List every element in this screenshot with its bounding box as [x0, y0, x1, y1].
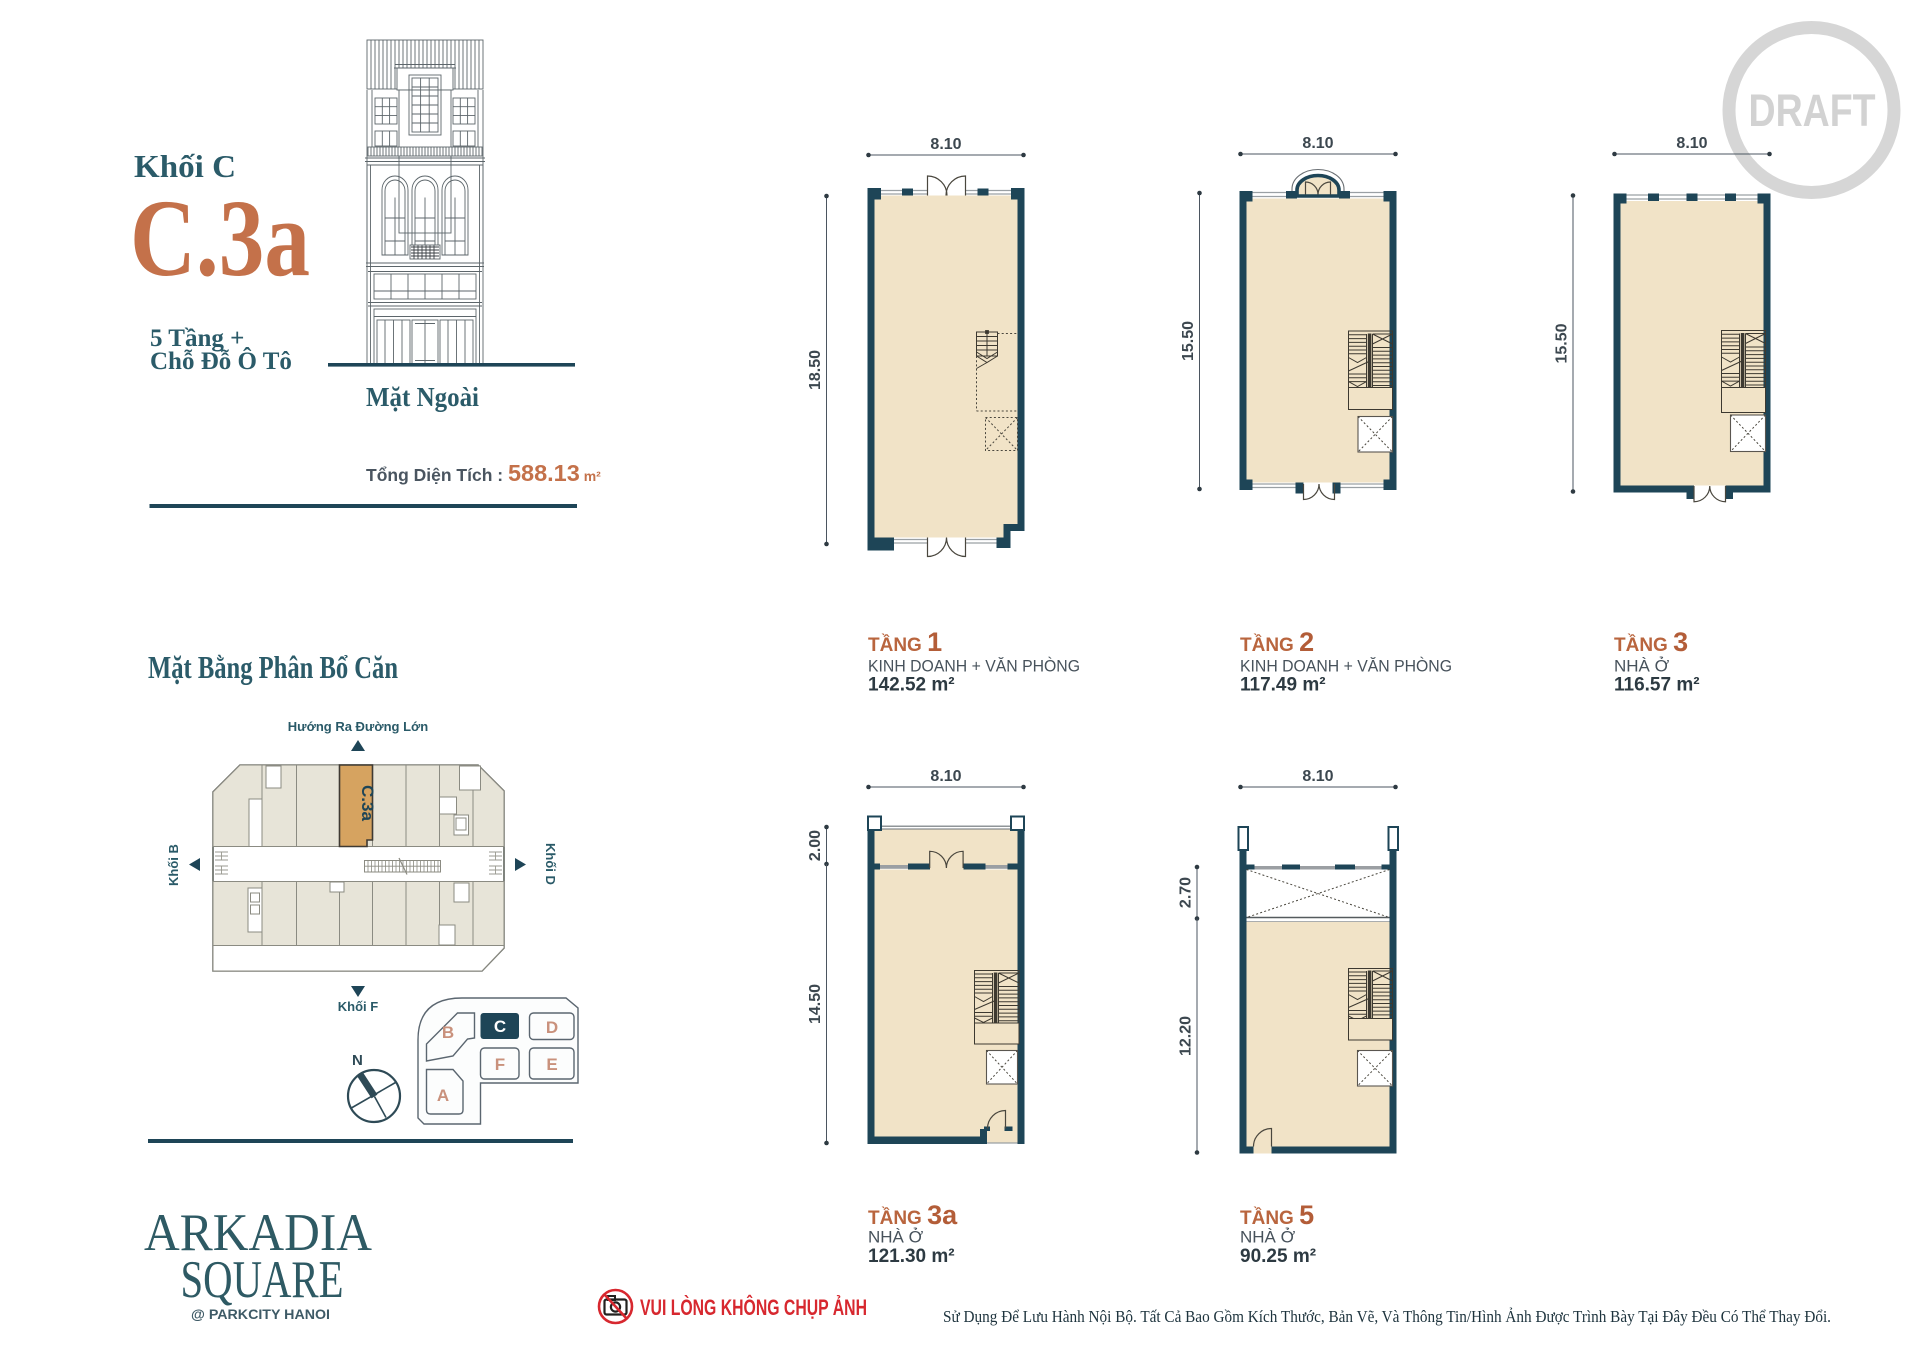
svg-text:15.50: 15.50	[1180, 321, 1197, 361]
svg-text:Khối B: Khối B	[166, 844, 181, 886]
svg-text:A: A	[437, 1086, 449, 1105]
svg-text:@ PARKCITY HANOI: @ PARKCITY HANOI	[191, 1307, 330, 1322]
svg-text:NHÀ Ở: NHÀ Ở	[1240, 1228, 1296, 1247]
svg-text:90.25 m²: 90.25 m²	[1240, 1246, 1316, 1267]
svg-text:C.3a: C.3a	[358, 785, 377, 821]
svg-text:8.10: 8.10	[1302, 135, 1333, 152]
svg-text:18.50: 18.50	[807, 350, 824, 390]
svg-text:KINH DOANH + VĂN PHÒNG: KINH DOANH + VĂN PHÒNG	[1240, 657, 1452, 676]
svg-text:8.10: 8.10	[930, 768, 961, 785]
svg-text:E: E	[546, 1055, 557, 1074]
svg-text:121.30 m²: 121.30 m²	[868, 1246, 955, 1267]
svg-text:VUI LÒNG KHÔNG CHỤP ẢNH: VUI LÒNG KHÔNG CHỤP ẢNH	[640, 1295, 867, 1320]
svg-text:SQUARE: SQUARE	[181, 1251, 344, 1309]
svg-text:NHÀ Ở: NHÀ Ở	[868, 1228, 924, 1247]
svg-text:8.10: 8.10	[1302, 768, 1333, 785]
svg-text:Mặt Ngoài: Mặt Ngoài	[366, 382, 479, 412]
svg-text:8.10: 8.10	[1676, 135, 1707, 152]
svg-text:2.70: 2.70	[1178, 877, 1195, 908]
svg-text:8.10: 8.10	[930, 136, 961, 153]
svg-text:Chỗ Đỗ Ô Tô: Chỗ Đỗ Ô Tô	[150, 346, 292, 375]
svg-text:14.50: 14.50	[807, 984, 824, 1024]
svg-text:NHÀ Ở: NHÀ Ở	[1614, 657, 1670, 676]
svg-text:C.3a: C.3a	[130, 177, 310, 299]
svg-text:N: N	[352, 1052, 363, 1069]
svg-text:KINH DOANH + VĂN PHÒNG: KINH DOANH + VĂN PHÒNG	[868, 657, 1080, 676]
svg-text:12.20: 12.20	[1178, 1016, 1195, 1056]
svg-text:15.50: 15.50	[1554, 323, 1571, 363]
svg-text:Khối D: Khối D	[543, 843, 558, 885]
svg-text:Sử Dụng Để Lưu Hành Nội Bộ. Tấ: Sử Dụng Để Lưu Hành Nội Bộ. Tất Cả Bao G…	[943, 1307, 1831, 1326]
svg-text:2.00: 2.00	[807, 830, 824, 861]
svg-text:F: F	[495, 1055, 505, 1074]
svg-text:D: D	[546, 1018, 558, 1037]
svg-text:C: C	[494, 1017, 506, 1036]
svg-text:B: B	[442, 1023, 454, 1042]
svg-text:DRAFT: DRAFT	[1749, 85, 1876, 136]
svg-text:116.57 m²: 116.57 m²	[1614, 675, 1700, 696]
svg-text:117.49 m²: 117.49 m²	[1240, 675, 1326, 696]
svg-text:Mặt Bằng Phân Bổ Căn: Mặt Bằng Phân Bổ Căn	[148, 649, 398, 685]
svg-text:Khối F: Khối F	[338, 999, 378, 1014]
svg-text:Hướng Ra Đường Lớn: Hướng Ra Đường Lớn	[288, 719, 428, 734]
svg-text:142.52 m²: 142.52 m²	[868, 675, 955, 696]
